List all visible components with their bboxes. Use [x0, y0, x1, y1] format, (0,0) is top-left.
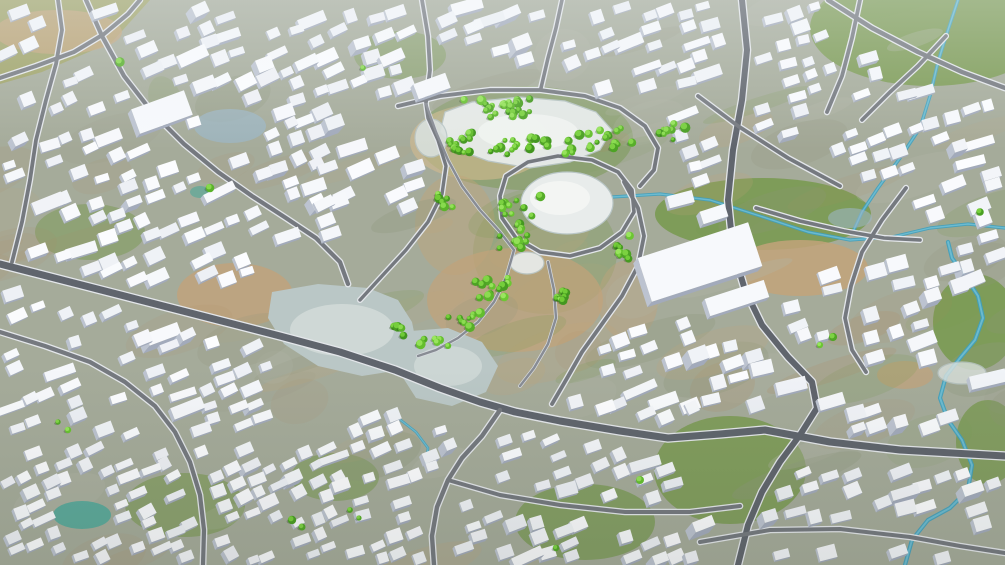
atmosphere-layer: [0, 0, 1005, 565]
city-model-canvas: [0, 0, 1005, 565]
vignette: [0, 0, 1005, 565]
city-3d-map-render: [0, 0, 1005, 565]
